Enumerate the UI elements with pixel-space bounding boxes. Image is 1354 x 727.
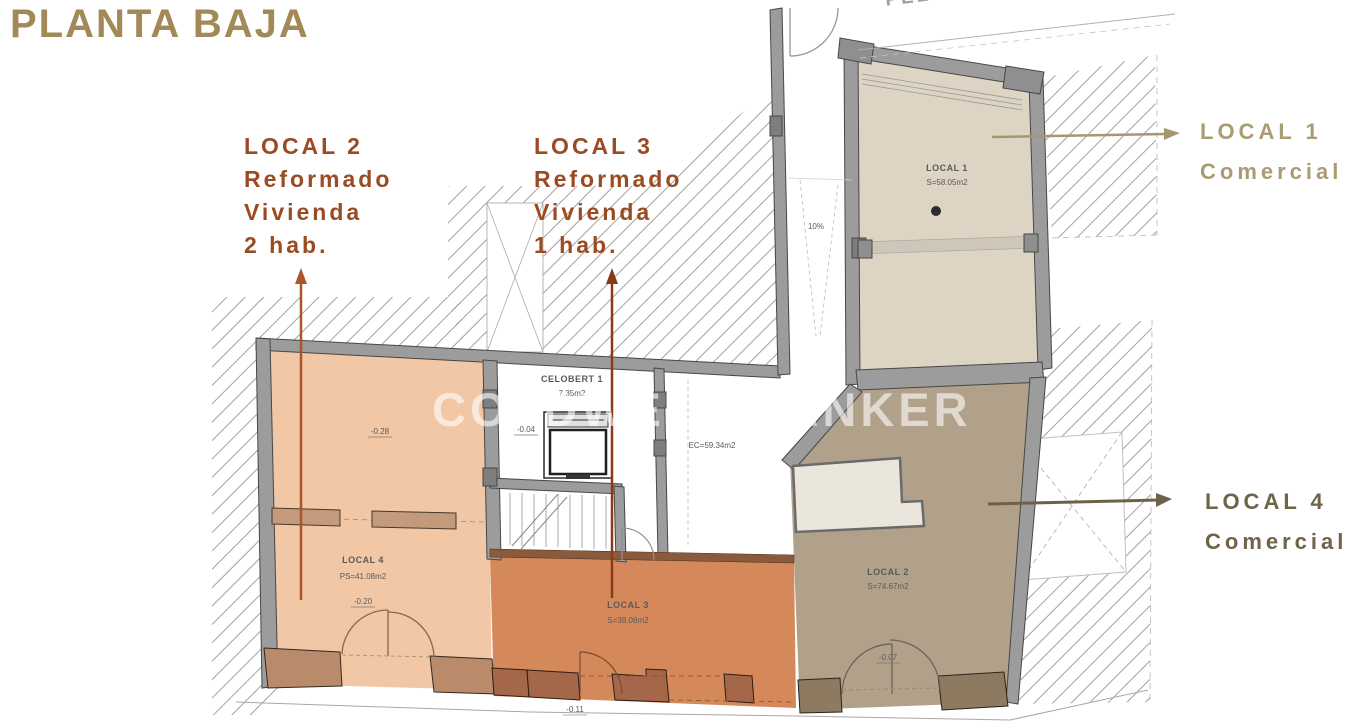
street-elevation: -0.11 bbox=[566, 705, 584, 714]
callout-local4: LOCAL 4 Comercial bbox=[1205, 482, 1347, 562]
local1-plan-label: LOCAL 1 bbox=[926, 163, 968, 173]
callout-local3-line: 1 hab. bbox=[534, 229, 682, 262]
callout-local4-title: LOCAL 4 bbox=[1205, 482, 1347, 522]
local3-plan-label: LOCAL 3 bbox=[607, 600, 649, 610]
column-dot bbox=[931, 206, 941, 216]
local4-plan-label: LOCAL 4 bbox=[342, 555, 384, 565]
elevator-icon bbox=[544, 412, 612, 479]
celobert-label: CELOBERT 1 bbox=[541, 374, 603, 384]
callout-local4-line: Comercial bbox=[1205, 522, 1347, 562]
callout-local3-title: LOCAL 3 bbox=[534, 130, 682, 163]
callout-local1-line: Comercial bbox=[1200, 152, 1342, 192]
local2-elevation: -0.07 bbox=[879, 653, 898, 662]
callout-local3: LOCAL 3 Reformado Vivienda 1 hab. bbox=[534, 130, 682, 262]
callout-local2-line: Reformado bbox=[244, 163, 392, 196]
callout-local2: LOCAL 2 Reformado Vivienda 2 hab. bbox=[244, 130, 392, 262]
celobert-area-label: 7.35m2 bbox=[559, 389, 586, 398]
floor-plan-page: LOCAL 1 S=58.05m2 LOCAL 4 PS=41.08m2 -0.… bbox=[0, 0, 1354, 727]
local4-elevation: -0.20 bbox=[354, 597, 373, 606]
entry-elevation: -0.28 bbox=[371, 427, 390, 436]
local3-area-label: S=38.08m2 bbox=[607, 616, 649, 625]
local2-area-label: S=74.67m2 bbox=[867, 582, 909, 591]
callout-local3-line: Reformado bbox=[534, 163, 682, 196]
corridor-area-label: EC=59.34m2 bbox=[689, 441, 736, 450]
callout-local1: LOCAL 1 Comercial bbox=[1200, 112, 1342, 192]
local4-area-label: PS=41.08m2 bbox=[340, 572, 387, 581]
callout-local2-line: 2 hab. bbox=[244, 229, 392, 262]
floor-plan-drawing: LOCAL 1 S=58.05m2 LOCAL 4 PS=41.08m2 -0.… bbox=[0, 0, 1354, 727]
callout-local2-line: Vivienda bbox=[244, 196, 392, 229]
page-title: PLANTA BAJA bbox=[10, 2, 310, 47]
ramp-slope-label: 10% bbox=[808, 222, 824, 231]
room-local1-fill bbox=[856, 52, 1040, 382]
local1-area-label: S=58.05m2 bbox=[926, 178, 968, 187]
callout-local2-title: LOCAL 2 bbox=[244, 130, 392, 163]
local2-plan-label: LOCAL 2 bbox=[867, 567, 909, 577]
celobert-elevation: -0.04 bbox=[517, 425, 536, 434]
callout-local1-title: LOCAL 1 bbox=[1200, 112, 1342, 152]
callout-local3-line: Vivienda bbox=[534, 196, 682, 229]
